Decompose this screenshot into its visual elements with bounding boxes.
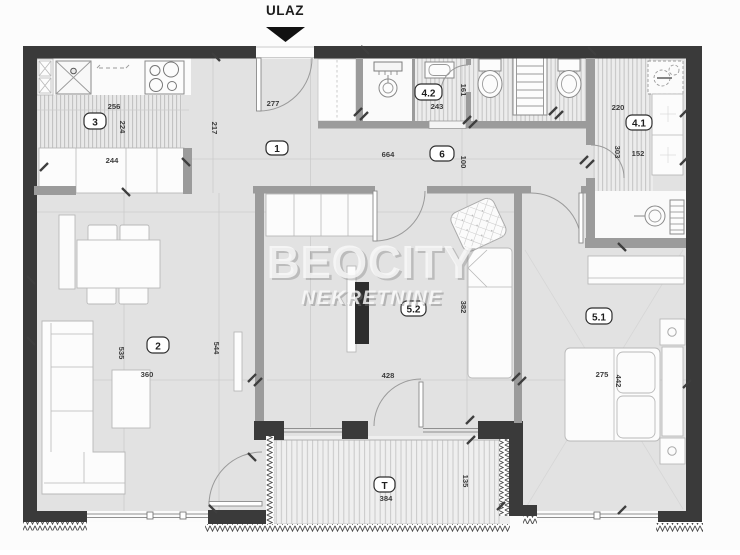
svg-text:135: 135 bbox=[461, 475, 470, 488]
svg-text:152: 152 bbox=[632, 149, 645, 158]
svg-text:217: 217 bbox=[210, 122, 219, 135]
svg-text:2: 2 bbox=[155, 342, 161, 353]
svg-text:244: 244 bbox=[106, 156, 119, 165]
svg-text:277: 277 bbox=[267, 99, 280, 108]
svg-text:220: 220 bbox=[612, 103, 625, 112]
svg-text:5.1: 5.1 bbox=[592, 313, 606, 324]
svg-text:4.1: 4.1 bbox=[632, 119, 646, 130]
svg-text:275: 275 bbox=[596, 370, 609, 379]
svg-text:664: 664 bbox=[382, 150, 395, 159]
svg-text:243: 243 bbox=[431, 102, 444, 111]
svg-text:442: 442 bbox=[614, 375, 623, 388]
svg-text:6: 6 bbox=[439, 150, 445, 161]
svg-text:100: 100 bbox=[459, 156, 468, 169]
svg-text:384: 384 bbox=[380, 494, 393, 503]
svg-text:360: 360 bbox=[141, 370, 154, 379]
svg-text:544: 544 bbox=[212, 342, 221, 355]
svg-text:T: T bbox=[381, 481, 387, 492]
svg-text:303: 303 bbox=[613, 146, 622, 159]
svg-text:382: 382 bbox=[459, 301, 468, 314]
svg-text:3: 3 bbox=[92, 118, 98, 129]
svg-text:224: 224 bbox=[118, 121, 127, 134]
svg-text:256: 256 bbox=[108, 102, 121, 111]
svg-text:428: 428 bbox=[382, 371, 395, 380]
svg-text:161: 161 bbox=[459, 84, 468, 97]
svg-text:1: 1 bbox=[274, 144, 280, 155]
svg-text:535: 535 bbox=[117, 347, 126, 360]
svg-text:4.2: 4.2 bbox=[422, 89, 436, 100]
svg-text:BEOCITY: BEOCITY bbox=[267, 236, 475, 288]
svg-text:NEKRETNINE: NEKRETNINE bbox=[301, 287, 443, 309]
svg-text:ULAZ: ULAZ bbox=[266, 3, 304, 18]
